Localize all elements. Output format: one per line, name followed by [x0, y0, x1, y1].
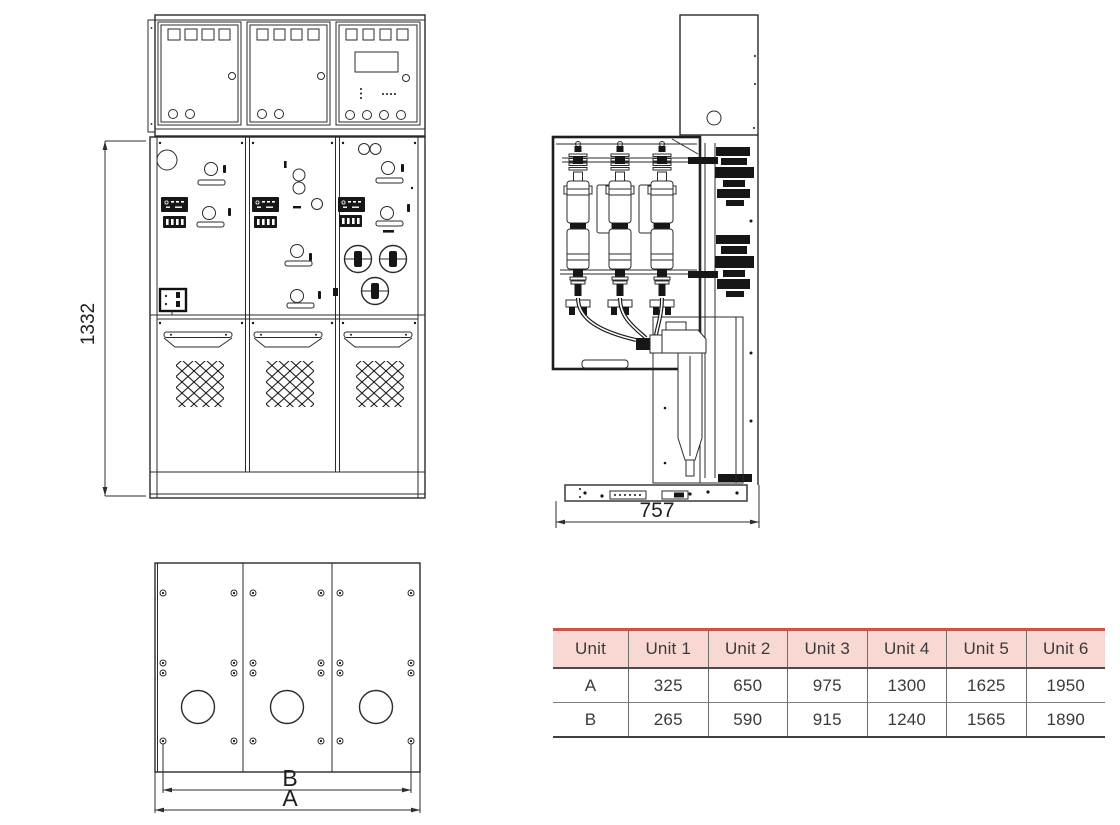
control-box-1 [158, 22, 241, 125]
control-box-3 [336, 22, 420, 125]
table-value: 1950 [1026, 669, 1106, 702]
mimic-panel-2 [252, 161, 338, 308]
column-header: Unit 6 [1026, 631, 1106, 667]
table-row-b: B 265 590 915 1240 1565 1890 [553, 703, 1105, 736]
lower-doors [164, 332, 412, 407]
height-dimension-label: 1332 [80, 303, 99, 345]
control-box-2 [247, 22, 330, 125]
front-top-instrument-row [148, 15, 425, 136]
dimension-1332: 1332 [80, 141, 146, 496]
vent-grille [176, 361, 224, 407]
dimension-757: 757 [556, 485, 759, 528]
outer-width-dimension-label: A [282, 785, 298, 811]
cable-compartment [578, 298, 743, 483]
elbow-cable-termination [636, 322, 706, 476]
cable-entry-holes [182, 691, 393, 724]
table-value: 325 [628, 669, 708, 702]
side-section-view: 757 [540, 8, 770, 538]
bushing-assemblies [564, 142, 676, 316]
vent-grille [356, 361, 404, 407]
table-value: 1565 [946, 703, 1026, 736]
interlock-box [160, 289, 186, 311]
table-value: 590 [708, 703, 788, 736]
display-screen [355, 52, 398, 72]
table-value: 1240 [867, 703, 947, 736]
table-header-row: Unit Unit 1 Unit 2 Unit 3 Unit 4 Unit 5 … [553, 631, 1105, 669]
front-elevation-view: 1332 [80, 8, 432, 513]
table-value: 915 [787, 703, 867, 736]
indicator-display [338, 197, 365, 212]
table-value: 975 [787, 669, 867, 702]
row-label: B [553, 703, 628, 736]
column-header: Unit 1 [628, 631, 708, 667]
indicator-display [161, 197, 188, 212]
row-label: A [553, 669, 628, 702]
table-value: 650 [708, 669, 788, 702]
column-header: Unit [553, 631, 628, 667]
column-header: Unit 3 [787, 631, 867, 667]
side-top-cabinet [680, 15, 758, 135]
mimic-panel-3 [338, 144, 413, 305]
fuse-holders [345, 246, 407, 305]
indicator-display [252, 197, 279, 212]
column-header: Unit 2 [708, 631, 788, 667]
phase-cables [578, 298, 662, 340]
vent-grille [266, 361, 314, 407]
table-value: 1300 [867, 669, 947, 702]
table-row-a: A 325 650 975 1300 1625 1950 [553, 669, 1105, 703]
table-value: 1890 [1026, 703, 1106, 736]
front-main-body [150, 137, 425, 498]
mimic-panel-1 [157, 150, 231, 315]
column-header: Unit 4 [867, 631, 947, 667]
bottom-plan-view: B A [140, 555, 440, 820]
unit-dimension-table: Unit Unit 1 Unit 2 Unit 3 Unit 4 Unit 5 … [553, 628, 1105, 738]
table-value: 265 [628, 703, 708, 736]
column-header: Unit 5 [946, 631, 1026, 667]
fixing-holes [160, 590, 414, 744]
table-value: 1625 [946, 669, 1026, 702]
plan-outline [155, 563, 420, 772]
width-dimension-label: 757 [639, 499, 674, 522]
engineering-drawing-page: { "drawing": { "front_view": { "height_l… [0, 0, 1120, 825]
